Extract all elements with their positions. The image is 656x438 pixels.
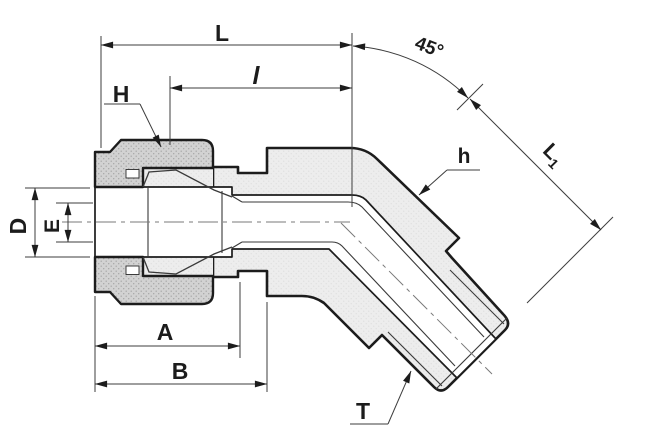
back-ferrule-notch-bottom [126, 266, 139, 275]
technical-drawing-canvas: L l 45° H h L1 D E A B T [0, 0, 656, 438]
dim-label-B: B [172, 358, 189, 384]
ext-line-angle-diagonal [457, 84, 483, 110]
dim-label-L1: L1 [536, 139, 569, 172]
dim-arc-45deg [353, 46, 468, 98]
dim-label-h: h [458, 145, 471, 168]
leader-line-T [388, 371, 411, 424]
dim-label-L: L [215, 20, 229, 46]
dim-label-T: T [356, 398, 370, 424]
dim-label-l: l [253, 62, 261, 90]
back-ferrule-notch-top [126, 170, 139, 179]
fitting-drawing-svg: L l 45° H h L1 D E A B T [0, 0, 656, 438]
dim-label-H: H [113, 81, 130, 107]
dim-label-E: E [41, 219, 64, 233]
leader-line-h [419, 170, 447, 195]
ext-line-thread-tip [527, 217, 613, 303]
dim-label-45deg: 45° [412, 33, 446, 63]
dim-label-A: A [157, 319, 174, 345]
dim-line-L1 [470, 99, 601, 230]
dim-label-D: D [5, 218, 31, 235]
